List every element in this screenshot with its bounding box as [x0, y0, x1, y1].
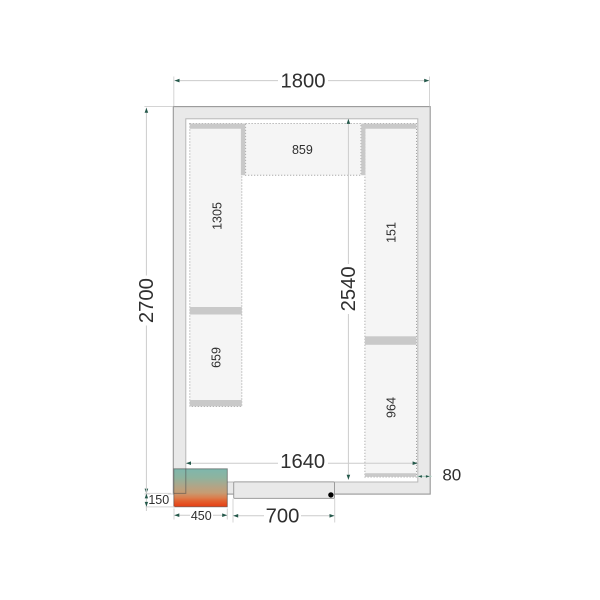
svg-text:1305: 1305 [211, 202, 225, 230]
svg-text:151: 151 [385, 222, 399, 243]
svg-text:2540: 2540 [338, 266, 360, 311]
svg-text:964: 964 [384, 397, 398, 418]
svg-text:450: 450 [191, 509, 212, 523]
svg-text:80: 80 [442, 465, 461, 484]
svg-text:150: 150 [148, 493, 169, 507]
svg-text:2700: 2700 [136, 278, 158, 323]
svg-text:859: 859 [292, 143, 313, 157]
svg-text:1640: 1640 [280, 451, 325, 473]
svg-text:1800: 1800 [281, 70, 326, 92]
svg-text:700: 700 [266, 506, 300, 528]
svg-text:659: 659 [209, 347, 223, 368]
